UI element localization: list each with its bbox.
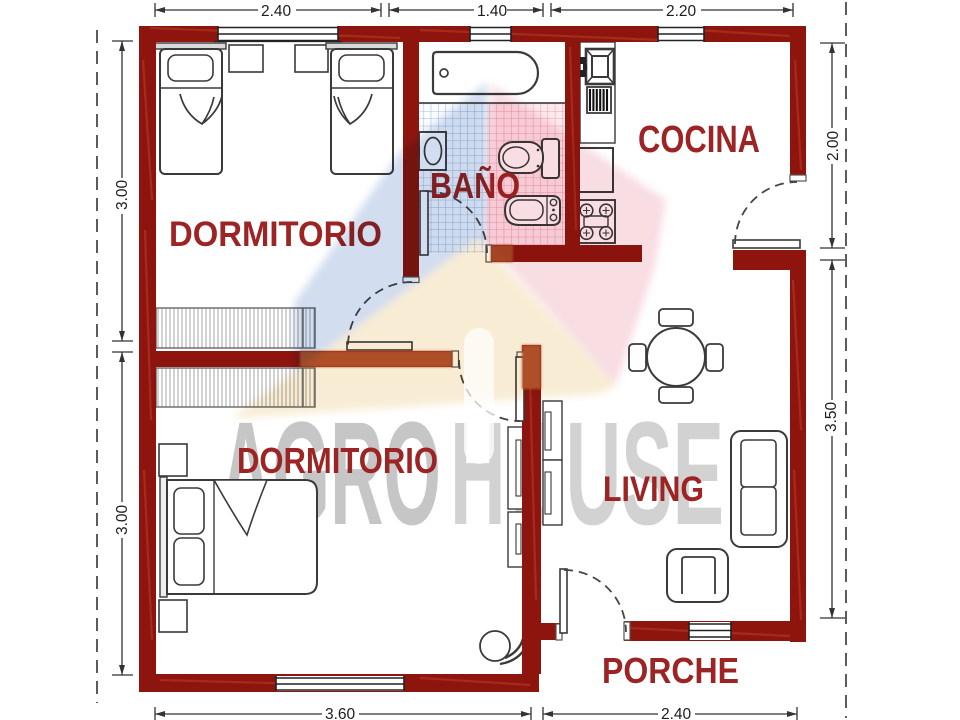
svg-text:LIVING: LIVING bbox=[603, 470, 704, 509]
svg-text:3.60: 3.60 bbox=[325, 706, 356, 720]
svg-text:2.00: 2.00 bbox=[825, 130, 842, 161]
svg-text:3.00: 3.00 bbox=[114, 179, 131, 210]
svg-text:3.50: 3.50 bbox=[823, 401, 840, 432]
svg-text:2.40: 2.40 bbox=[261, 3, 292, 20]
svg-text:2.40: 2.40 bbox=[661, 706, 692, 720]
svg-text:DORMITORIO: DORMITORIO bbox=[237, 440, 438, 481]
svg-text:1.40: 1.40 bbox=[477, 3, 508, 20]
svg-text:2.20: 2.20 bbox=[666, 3, 697, 20]
svg-text:3.00: 3.00 bbox=[114, 504, 131, 535]
svg-text:COCINA: COCINA bbox=[638, 119, 760, 161]
svg-text:PORCHE: PORCHE bbox=[602, 650, 739, 691]
